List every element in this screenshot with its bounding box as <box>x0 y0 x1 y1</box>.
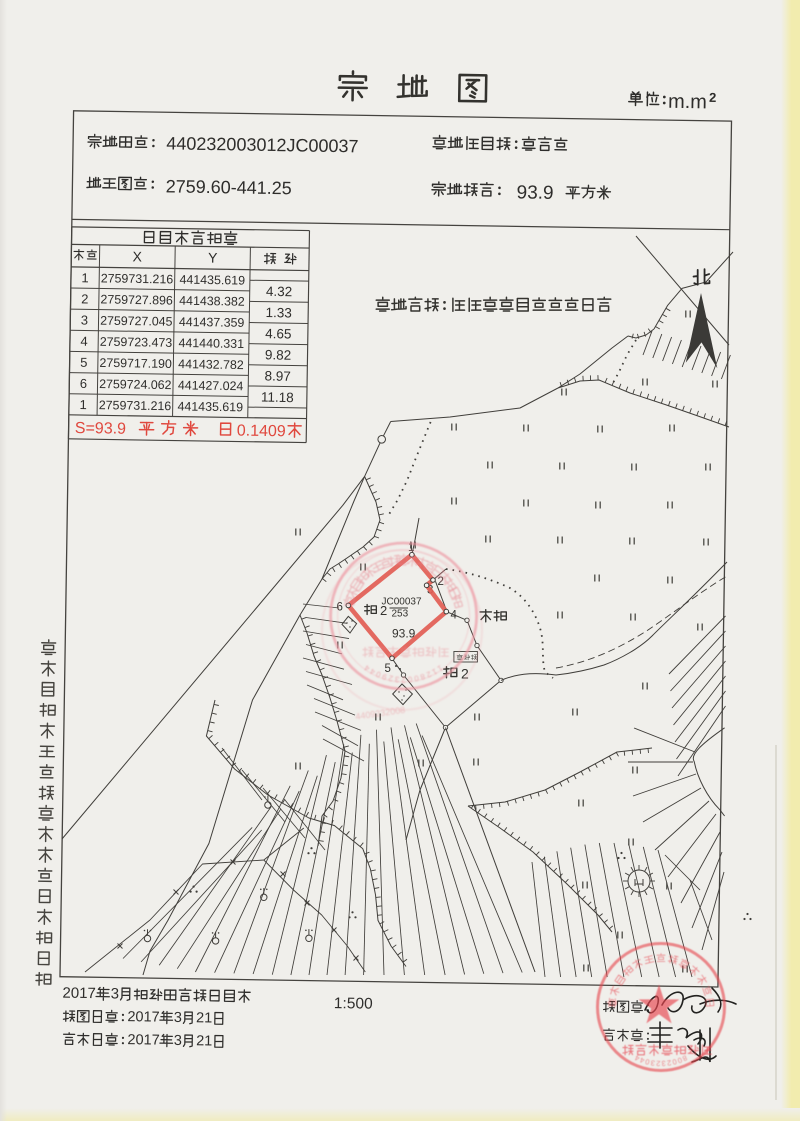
svg-text:3: 3 <box>174 1010 182 1026</box>
svg-text:m.m: m.m <box>668 91 707 114</box>
svg-text:441435.619: 441435.619 <box>177 399 243 414</box>
svg-text:8.97: 8.97 <box>264 368 291 383</box>
svg-text:440232003012JC00037: 440232003012JC00037 <box>166 133 358 156</box>
svg-text:2759727.896: 2759727.896 <box>100 292 173 307</box>
svg-text:2: 2 <box>401 675 406 684</box>
svg-text:2: 2 <box>81 291 88 306</box>
svg-text:2759731.216: 2759731.216 <box>101 271 174 286</box>
svg-text:3: 3 <box>661 1059 666 1068</box>
svg-text:441432.782: 441432.782 <box>178 357 244 372</box>
svg-text:3: 3 <box>174 1033 182 1049</box>
svg-text:2017: 2017 <box>127 1032 160 1049</box>
svg-text:1:500: 1:500 <box>334 995 373 1013</box>
svg-text:1: 1 <box>79 397 86 412</box>
svg-text:2017: 2017 <box>62 985 96 1003</box>
svg-text:441440.331: 441440.331 <box>178 336 244 351</box>
svg-text:441435.619: 441435.619 <box>179 273 245 288</box>
svg-text:4.32: 4.32 <box>266 284 293 299</box>
svg-text:2759727.045: 2759727.045 <box>100 314 173 329</box>
svg-text:2759717.190: 2759717.190 <box>99 356 172 371</box>
svg-text:11.18: 11.18 <box>261 390 294 406</box>
svg-text:3: 3 <box>81 313 88 328</box>
svg-text:21: 21 <box>196 1010 212 1026</box>
svg-text:21: 21 <box>196 1033 212 1049</box>
svg-text:2759.60-441.25: 2759.60-441.25 <box>166 176 292 198</box>
svg-text:2: 2 <box>666 1058 671 1068</box>
svg-text:441427.024: 441427.024 <box>178 378 244 393</box>
svg-text:93.9: 93.9 <box>516 182 553 204</box>
svg-text:253: 253 <box>392 609 409 620</box>
svg-text:441437.359: 441437.359 <box>179 315 245 330</box>
svg-text:2759731.216: 2759731.216 <box>99 398 172 413</box>
svg-text:5: 5 <box>80 355 87 370</box>
svg-text:2017: 2017 <box>127 1009 160 1026</box>
svg-text:0: 0 <box>407 674 413 683</box>
svg-text:S=93.9: S=93.9 <box>75 420 127 438</box>
svg-text:2: 2 <box>656 1059 661 1068</box>
svg-text:1: 1 <box>81 270 88 285</box>
svg-text:3: 3 <box>394 674 400 683</box>
svg-text:2759724.062: 2759724.062 <box>99 377 172 392</box>
svg-text:9.82: 9.82 <box>265 347 292 362</box>
svg-text:JC00037: JC00037 <box>382 597 422 608</box>
svg-text:X: X <box>132 248 142 264</box>
svg-text:441438.382: 441438.382 <box>179 294 245 309</box>
svg-text:4.65: 4.65 <box>265 326 292 341</box>
svg-text:2: 2 <box>709 90 716 105</box>
svg-text:1.33: 1.33 <box>265 305 292 320</box>
svg-text:Y: Y <box>208 250 218 266</box>
svg-text:4: 4 <box>451 610 458 622</box>
svg-text:2759723.473: 2759723.473 <box>100 335 173 350</box>
svg-text:6: 6 <box>80 376 87 391</box>
svg-text:0.1409: 0.1409 <box>237 422 286 440</box>
svg-text:3: 3 <box>111 985 120 1002</box>
svg-text:4: 4 <box>80 334 87 349</box>
